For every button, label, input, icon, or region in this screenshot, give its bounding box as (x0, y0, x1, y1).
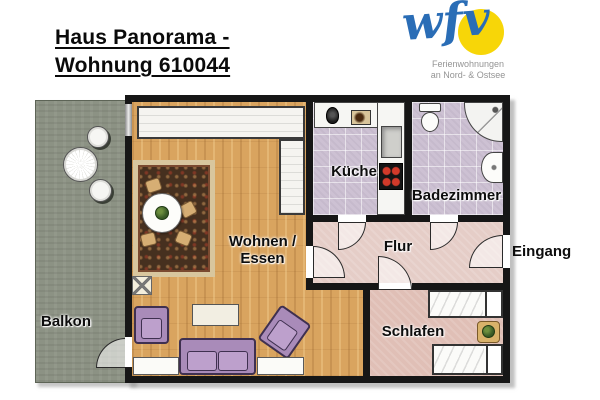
balcony-chair-2 (89, 179, 112, 202)
wall-hallway-top (306, 215, 503, 222)
logo-tagline: Ferienwohnungen an Nord- & Ostsee (422, 59, 514, 81)
washbasin (481, 152, 503, 183)
apartment-outline: Wohnen / Essen Küche Badezimmer Flur Sch… (125, 95, 510, 383)
entrance-door-gap (503, 235, 510, 268)
sofa (179, 338, 256, 375)
balcony-window (125, 104, 132, 136)
label-bedroom: Schlafen (380, 323, 446, 340)
kitchen-sink (381, 126, 402, 158)
balcony-door-gap (125, 337, 132, 367)
lamp-table (132, 276, 152, 295)
logo-wordmark: wfv (400, 0, 492, 52)
label-balcony: Balkon (36, 313, 96, 330)
room-balcony: Balkon (35, 100, 134, 383)
label-hallway: Flur (368, 238, 428, 255)
balcony-chair-1 (87, 126, 109, 148)
wall-living-bedroom (363, 290, 370, 376)
window-bench-left (133, 357, 179, 375)
wardrobe (137, 106, 305, 139)
balcony-table (63, 147, 98, 182)
kettle-icon (326, 107, 339, 124)
kitchen-counter-right (377, 102, 405, 215)
microwave-icon (351, 110, 371, 125)
toilet-tank (419, 103, 441, 112)
sideboard (279, 139, 305, 215)
armchair-left (134, 306, 169, 344)
label-kitchen: Küche (323, 163, 385, 180)
nightstand-plant (482, 325, 495, 338)
bed-1 (428, 290, 503, 318)
label-entrance: Eingang (512, 243, 571, 260)
wall-living-kitchen (306, 102, 313, 222)
window-bench-right (257, 357, 304, 375)
bed-2 (432, 344, 503, 375)
kitchen-door-gap (338, 215, 366, 222)
table-plant (155, 206, 169, 220)
bathroom-door-gap (430, 215, 458, 222)
coffee-table (192, 304, 239, 326)
balcony-door-arc (96, 338, 126, 368)
floorplan-page: Haus Panorama - Wohnung 610044 wfv Ferie… (0, 0, 600, 400)
label-living: Wohnen / Essen (215, 233, 310, 267)
label-bathroom: Badezimmer (409, 187, 504, 204)
